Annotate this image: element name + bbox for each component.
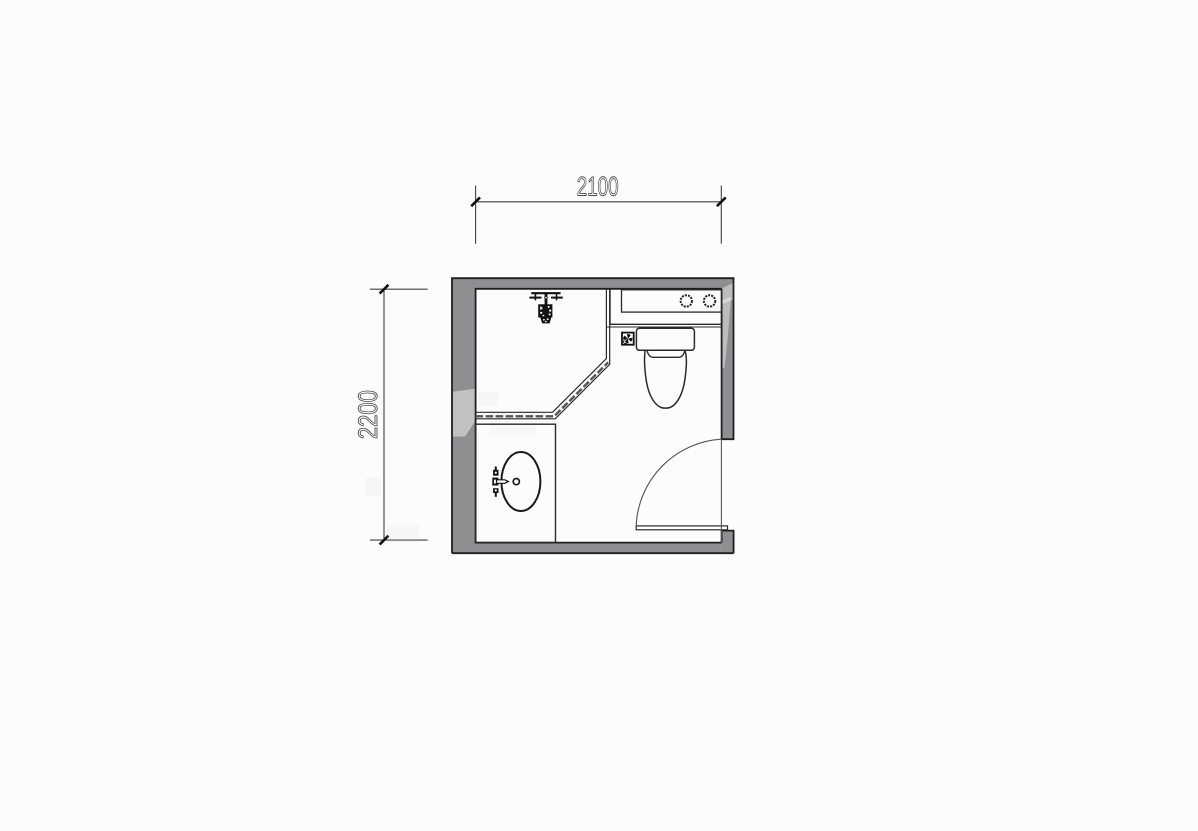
svg-text:2100: 2100 [577,171,619,201]
svg-text:2200: 2200 [353,390,383,439]
